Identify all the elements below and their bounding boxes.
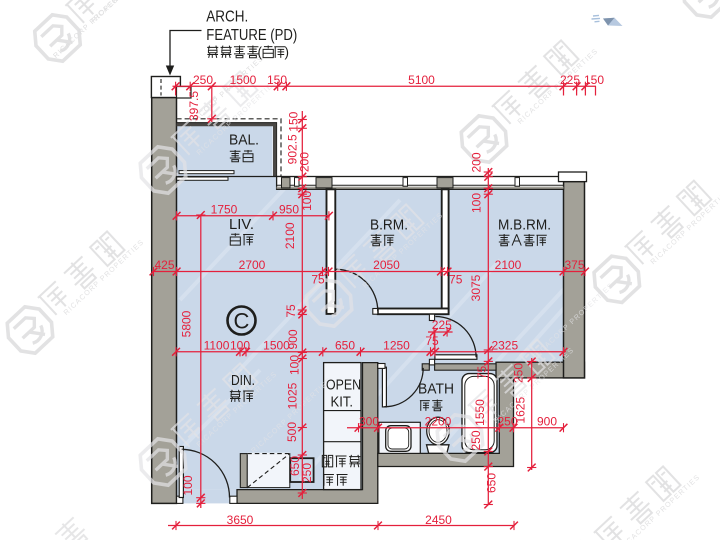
svg-text:75: 75 — [284, 304, 298, 318]
svg-text:5800: 5800 — [179, 310, 193, 337]
svg-text:1750: 1750 — [211, 202, 238, 216]
svg-text:2100: 2100 — [495, 258, 522, 272]
svg-text:LIV.: LIV. — [229, 216, 254, 233]
svg-text:75: 75 — [311, 273, 325, 287]
svg-text:200: 200 — [297, 152, 311, 172]
svg-text:100: 100 — [288, 355, 302, 375]
svg-text:B.RM.: B.RM. — [370, 217, 408, 234]
svg-text:650: 650 — [484, 473, 498, 493]
svg-text:300: 300 — [359, 415, 379, 429]
svg-text:375: 375 — [564, 258, 584, 272]
svg-text:950: 950 — [279, 202, 299, 216]
svg-text:150: 150 — [287, 111, 301, 131]
svg-text:500: 500 — [285, 422, 299, 442]
svg-text:150: 150 — [584, 73, 604, 87]
svg-text:75: 75 — [449, 273, 463, 287]
svg-text:1550: 1550 — [473, 399, 487, 426]
svg-text:M.B.RM.: M.B.RM. — [498, 217, 551, 234]
svg-text:2700: 2700 — [239, 258, 266, 272]
svg-text:75: 75 — [425, 334, 439, 348]
svg-text:KIT.: KIT. — [331, 394, 354, 411]
svg-text:1625: 1625 — [514, 397, 528, 424]
svg-text:ARCH.: ARCH. — [206, 8, 248, 25]
svg-text:1500: 1500 — [263, 339, 290, 353]
svg-text:3075: 3075 — [469, 274, 483, 301]
svg-text:75: 75 — [475, 366, 489, 380]
svg-text:C: C — [234, 309, 250, 334]
svg-text:250: 250 — [193, 73, 213, 87]
svg-text:2325: 2325 — [491, 339, 518, 353]
svg-text:FEATURE (PD): FEATURE (PD) — [206, 27, 297, 44]
svg-text:): ) — [285, 45, 290, 60]
svg-text:100: 100 — [181, 475, 195, 495]
svg-text:1100: 1100 — [204, 339, 230, 353]
svg-text:225: 225 — [432, 318, 452, 332]
svg-text:250: 250 — [511, 363, 525, 383]
svg-text:250: 250 — [300, 463, 314, 483]
svg-text:225: 225 — [560, 73, 580, 87]
svg-text:2050: 2050 — [373, 258, 400, 272]
svg-text:3650: 3650 — [227, 513, 254, 527]
svg-text:1250: 1250 — [383, 339, 410, 353]
svg-text:2200: 2200 — [425, 415, 452, 429]
svg-text:200: 200 — [469, 152, 483, 172]
svg-text:2100: 2100 — [283, 222, 297, 249]
svg-text:1500: 1500 — [230, 73, 257, 87]
svg-text:250: 250 — [469, 430, 483, 450]
svg-text:425: 425 — [154, 258, 174, 272]
svg-text:900: 900 — [537, 415, 557, 429]
svg-text:OPEN: OPEN — [326, 377, 361, 394]
svg-text:100: 100 — [300, 191, 314, 211]
svg-text:397.5: 397.5 — [187, 91, 201, 121]
svg-text:100: 100 — [230, 339, 250, 353]
svg-text:2450: 2450 — [425, 513, 452, 527]
svg-text:150: 150 — [267, 73, 287, 87]
svg-text:100: 100 — [469, 193, 483, 213]
svg-text:1025: 1025 — [285, 382, 299, 409]
svg-text:650: 650 — [335, 339, 355, 353]
svg-text:5100: 5100 — [408, 73, 435, 87]
svg-text:BAL.: BAL. — [229, 132, 259, 149]
svg-text:(: ( — [258, 45, 263, 60]
svg-text:DIN.: DIN. — [231, 372, 255, 389]
svg-text:BATH: BATH — [418, 381, 454, 398]
